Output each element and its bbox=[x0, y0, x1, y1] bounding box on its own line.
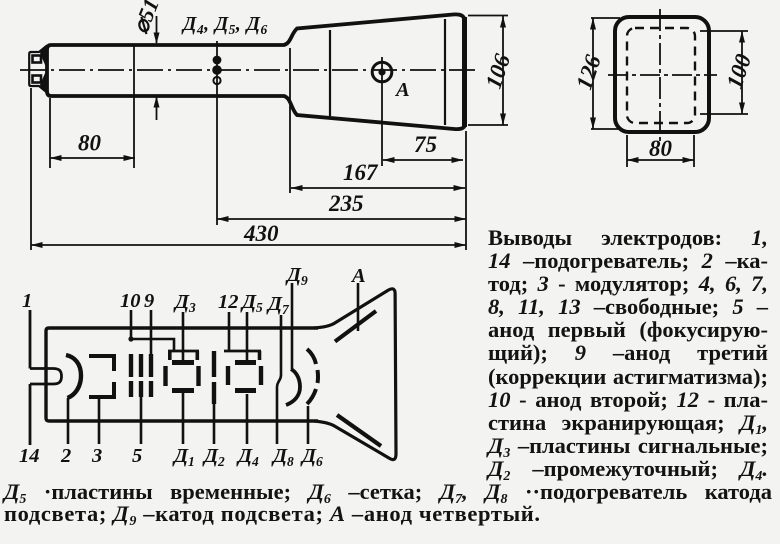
svg-text:⌀51: ⌀51 bbox=[127, 0, 163, 37]
svg-text:235: 235 bbox=[328, 191, 364, 216]
svg-text:75: 75 bbox=[414, 132, 437, 157]
svg-text:80: 80 bbox=[78, 131, 102, 156]
svg-text:80: 80 bbox=[649, 136, 673, 161]
svg-text:Д2: Д2 bbox=[202, 445, 225, 469]
svg-text:12: 12 bbox=[218, 291, 239, 313]
svg-text:Д4, Д5, Д6: Д4, Д5, Д6 bbox=[181, 14, 268, 37]
svg-text:100: 100 bbox=[722, 51, 757, 92]
svg-text:Д6: Д6 bbox=[300, 445, 323, 469]
svg-text:A: A bbox=[350, 265, 366, 287]
svg-text:Д1: Д1 bbox=[172, 445, 195, 469]
svg-text:9: 9 bbox=[144, 290, 154, 312]
svg-text:Д3: Д3 bbox=[173, 291, 196, 315]
svg-text:1: 1 bbox=[22, 290, 32, 312]
svg-text:Д5: Д5 bbox=[240, 291, 263, 315]
svg-text:Д7: Д7 bbox=[266, 293, 290, 317]
svg-text:10: 10 bbox=[120, 290, 141, 312]
svg-text:14: 14 bbox=[19, 445, 40, 467]
svg-text:106: 106 bbox=[481, 51, 516, 92]
svg-text:5: 5 bbox=[132, 445, 142, 467]
svg-text:Д8: Д8 bbox=[271, 445, 294, 469]
svg-text:126: 126 bbox=[571, 52, 606, 93]
svg-text:430: 430 bbox=[243, 221, 279, 246]
svg-text:Д4: Д4 bbox=[236, 445, 259, 469]
svg-text:3: 3 bbox=[91, 445, 102, 467]
svg-text:Д9: Д9 bbox=[285, 264, 308, 288]
svg-text:167: 167 bbox=[343, 160, 379, 185]
svg-text:A: A bbox=[394, 79, 410, 101]
svg-text:2: 2 bbox=[60, 445, 71, 467]
